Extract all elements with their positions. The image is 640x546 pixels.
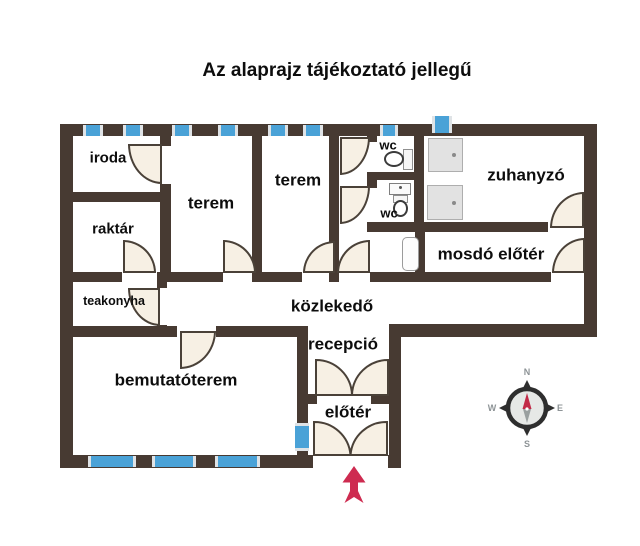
tap-icon: [399, 186, 402, 189]
toilet-cistern-icon: [403, 149, 413, 170]
wall: [160, 184, 171, 282]
wall: [160, 124, 171, 146]
compass-north-label: N: [524, 367, 531, 377]
room-label-recepcio: recepció: [308, 336, 378, 353]
window: [268, 125, 288, 136]
drain-icon: [452, 201, 456, 205]
window: [303, 125, 323, 136]
double-door: [315, 357, 389, 397]
window: [432, 116, 452, 133]
room-label-eloter: előtér: [325, 404, 371, 421]
room-label-terem-2: terem: [275, 172, 321, 189]
wall: [60, 124, 73, 468]
room-label-bemutatoterem: bemutatóterem: [115, 372, 238, 389]
double-door: [313, 419, 388, 457]
window: [152, 456, 196, 467]
wall: [370, 272, 551, 282]
wall: [584, 124, 597, 337]
wall: [329, 272, 339, 282]
wall: [257, 272, 302, 282]
window: [215, 456, 260, 467]
window: [295, 423, 309, 451]
compass-west-label: W: [488, 403, 497, 413]
wall: [60, 192, 160, 202]
drain-icon: [452, 153, 456, 157]
wall: [252, 124, 262, 282]
window: [380, 125, 398, 136]
door: [128, 144, 162, 184]
window: [88, 456, 136, 467]
room-label-iroda: iroda: [90, 151, 127, 166]
wall: [414, 136, 424, 232]
wall: [367, 222, 548, 232]
door: [303, 241, 335, 273]
room-label-teakonyha: teakonyha: [83, 295, 145, 308]
window: [83, 125, 103, 136]
room-label-kozlekedo: közlekedő: [291, 298, 373, 315]
door: [340, 137, 370, 175]
door: [123, 240, 156, 273]
toilet-icon: [384, 151, 404, 167]
door: [337, 240, 370, 273]
compass-south-label: S: [524, 439, 530, 449]
room-label-terem-1: terem: [188, 195, 234, 212]
plan-title: Az alaprajz tájékoztató jellegű: [202, 60, 471, 82]
compass-east-label: E: [557, 403, 563, 413]
floor-plan: Az alaprajz tájékoztató jellegű: [0, 0, 640, 546]
door: [340, 186, 370, 224]
window: [123, 125, 143, 136]
wall: [60, 272, 122, 282]
door: [552, 238, 585, 273]
window: [218, 125, 238, 136]
room-label-wc-2: wc: [380, 207, 397, 220]
window: [172, 125, 192, 136]
compass-rose-icon: [495, 376, 559, 440]
door: [180, 331, 216, 369]
wall: [60, 326, 177, 337]
shower-tray-icon: [427, 185, 463, 220]
wall: [297, 394, 317, 404]
wall: [157, 272, 223, 282]
room-label-zuhanyzo: zuhanyzó: [487, 167, 564, 184]
washbasin-icon: [402, 237, 419, 271]
shower-tray-icon: [428, 138, 463, 172]
washbasin-icon: [389, 183, 411, 195]
wall: [216, 326, 308, 337]
room-label-raktar: raktár: [92, 222, 134, 237]
room-label-mosdo-eloter: mosdó előtér: [438, 246, 545, 263]
room-label-wc-1: wc: [379, 139, 396, 152]
wall: [401, 324, 597, 337]
entrance-arrow-icon: [342, 466, 366, 504]
door: [550, 192, 584, 228]
wall: [367, 172, 414, 180]
